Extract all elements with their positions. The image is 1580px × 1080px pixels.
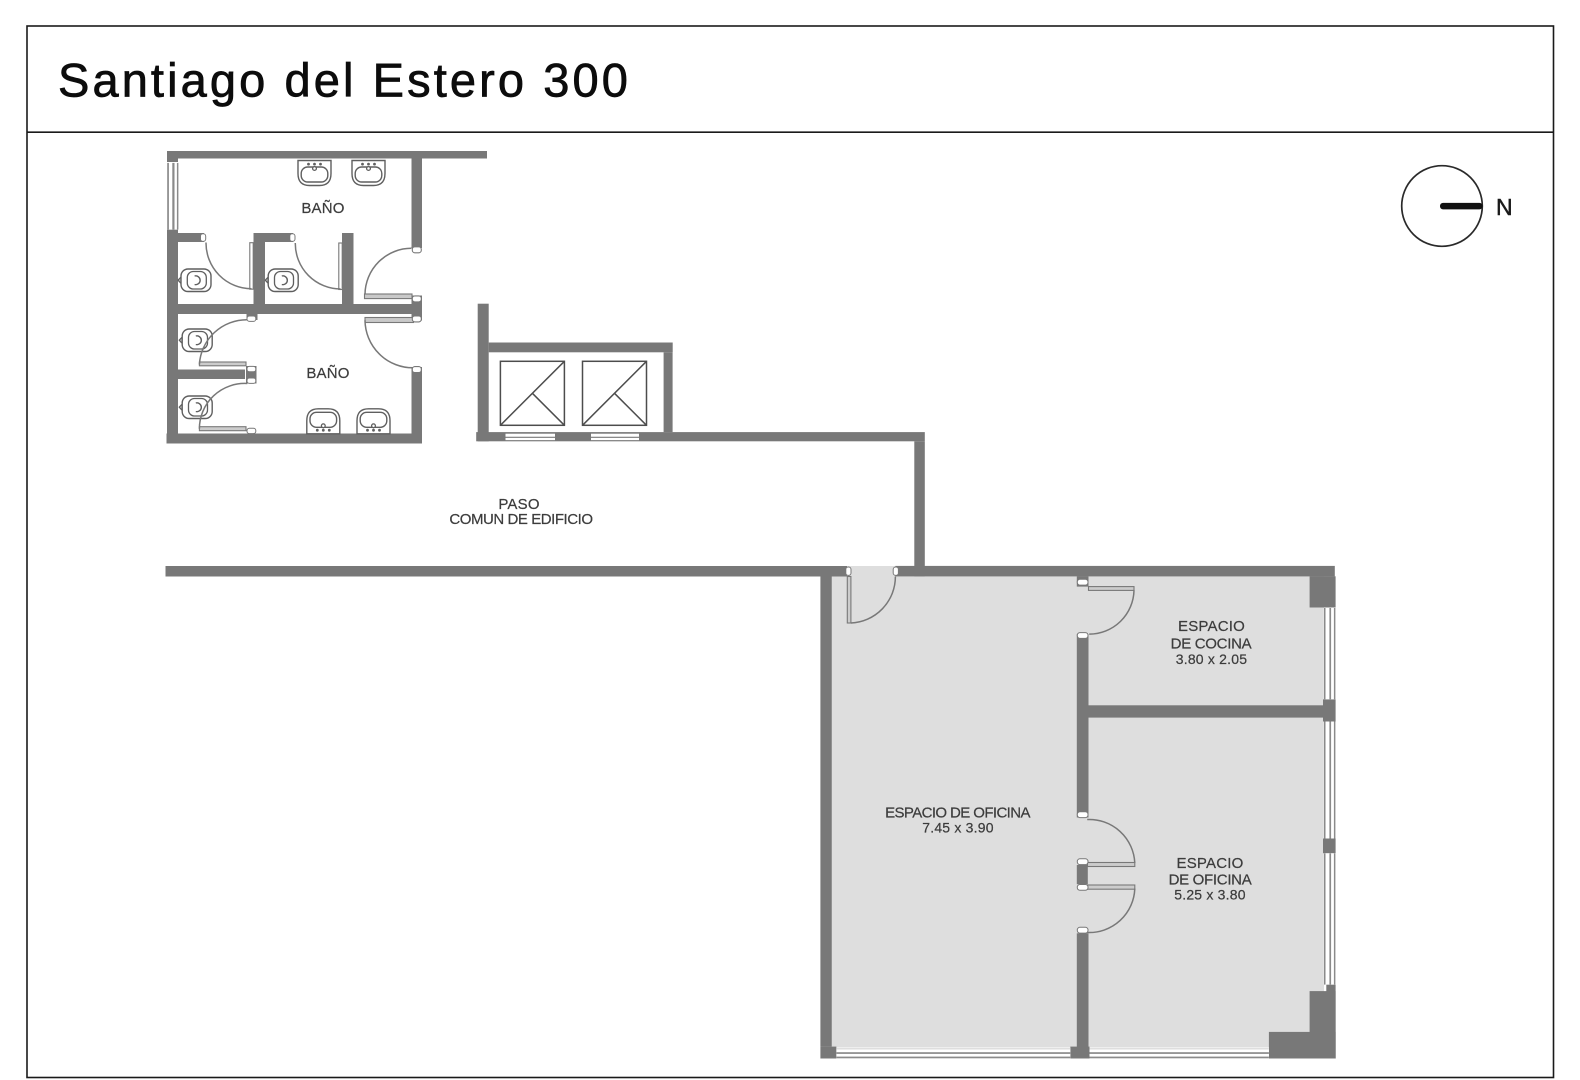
svg-text:N: N [1496, 194, 1513, 220]
svg-text:ESPACIO: ESPACIO [1177, 855, 1244, 872]
svg-text:7.45 x 3.90: 7.45 x 3.90 [922, 820, 993, 836]
svg-text:ESPACIO: ESPACIO [1178, 618, 1245, 635]
svg-text:5.25 x 3.80: 5.25 x 3.80 [1174, 887, 1245, 903]
svg-text:BAÑO: BAÑO [301, 200, 344, 217]
svg-text:BAÑO: BAÑO [306, 365, 349, 382]
svg-text:COMUN DE EDIFICIO: COMUN DE EDIFICIO [449, 511, 592, 528]
svg-text:3.80 x 2.05: 3.80 x 2.05 [1176, 651, 1247, 667]
svg-text:Santiago del Estero 300: Santiago del Estero 300 [58, 54, 631, 107]
